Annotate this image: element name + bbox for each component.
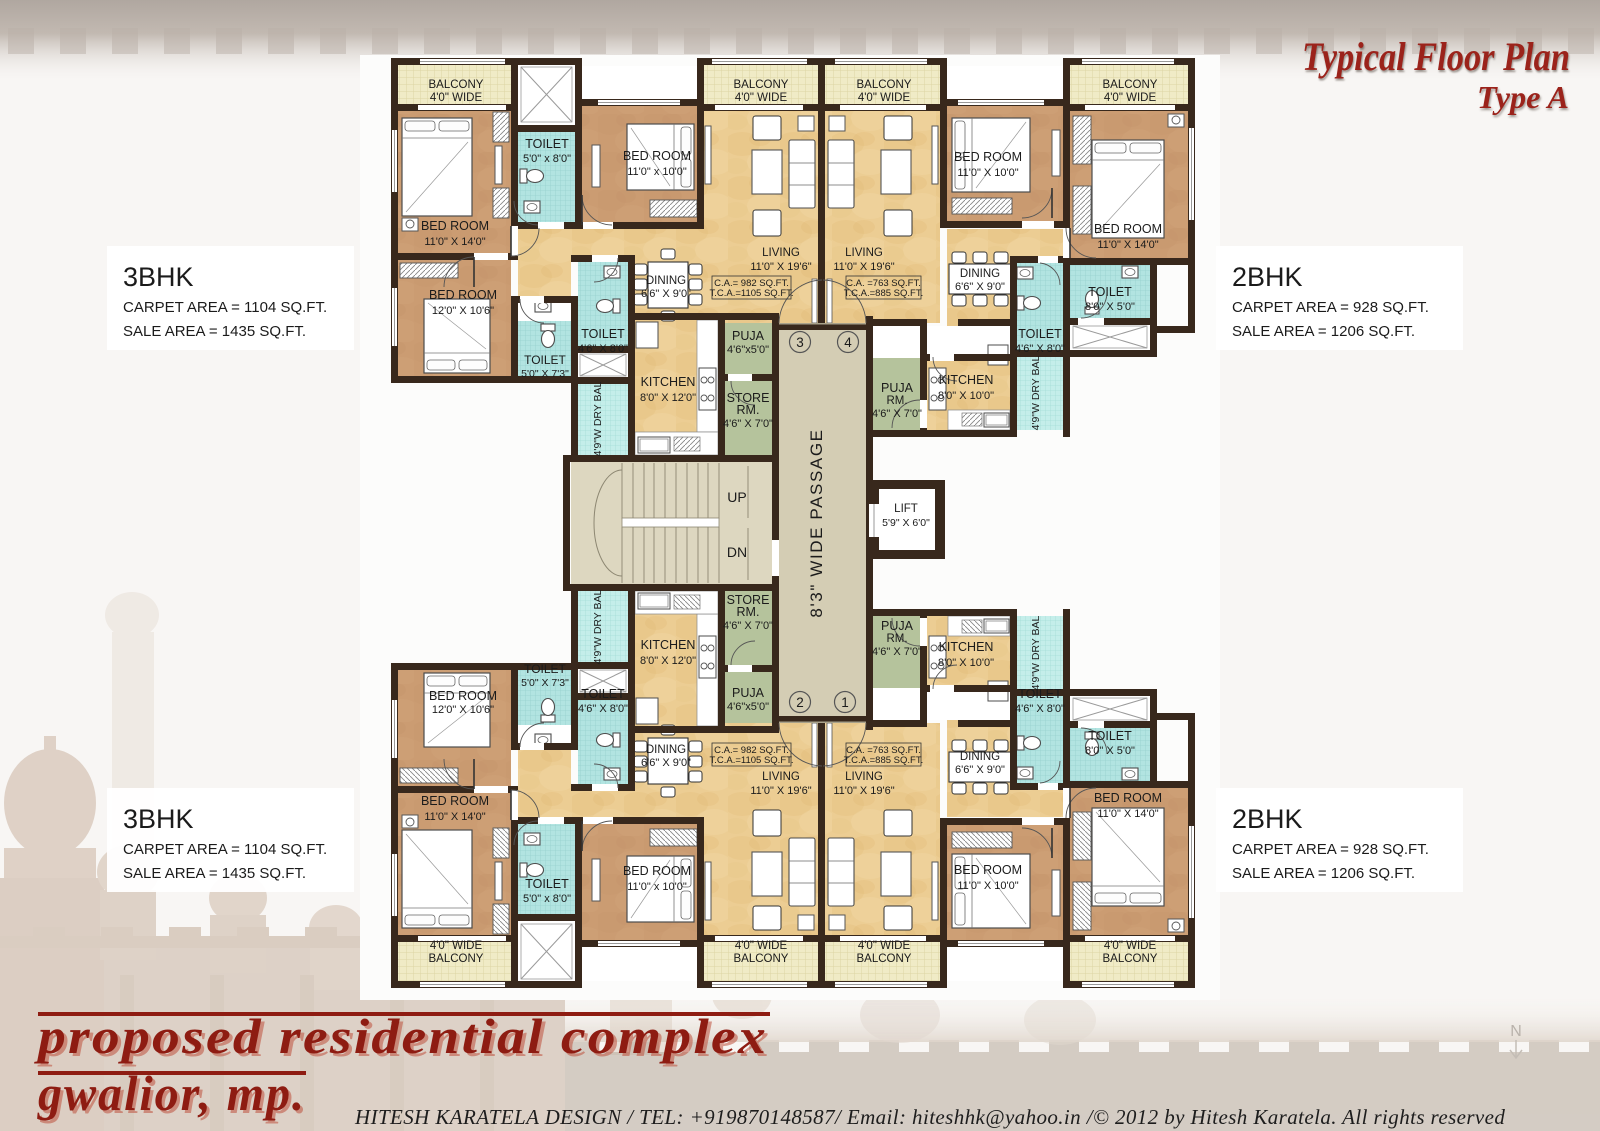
svg-text:Typical Floor Plan: Typical Floor Plan (1302, 34, 1570, 79)
svg-text:11'0" X 19'6": 11'0" X 19'6" (750, 785, 811, 797)
svg-text:4'9"W DRY BAL: 4'9"W DRY BAL (1030, 355, 1042, 430)
svg-text:BED ROOM: BED ROOM (421, 219, 489, 233)
svg-text:HITESH KARATELA DESIGN / TEL:: HITESH KARATELA DESIGN / TEL: +919870148… (354, 1105, 1505, 1129)
svg-text:4'0" WIDE: 4'0" WIDE (858, 92, 911, 104)
svg-text:11'0" X 19'6": 11'0" X 19'6" (833, 261, 894, 273)
svg-text:8'3" WIDE PASSAGE: 8'3" WIDE PASSAGE (807, 428, 826, 617)
svg-text:11'0" X 19'6": 11'0" X 19'6" (833, 785, 894, 797)
svg-text:11'0" X 10'0": 11'0" X 10'0" (957, 167, 1018, 179)
svg-text:4'6" X 8'0": 4'6" X 8'0" (578, 703, 628, 715)
svg-text:T.C.A.=885 SQ.FT.: T.C.A.=885 SQ.FT. (844, 755, 923, 766)
svg-text:5'0" X 7'3": 5'0" X 7'3" (521, 368, 569, 380)
svg-text:proposed residential complex: proposed residential complex (34, 1008, 768, 1064)
svg-text:4'6" X 8'0": 4'6" X 8'0" (578, 343, 628, 355)
svg-text:11'0" X 14'0": 11'0" X 14'0" (1097, 808, 1158, 820)
svg-text:11'0" x 10'0": 11'0" x 10'0" (627, 166, 687, 178)
svg-text:4'6" X 7'0": 4'6" X 7'0" (872, 646, 922, 658)
svg-text:11'0" X 14'0": 11'0" X 14'0" (424, 811, 485, 823)
svg-text:TOILET: TOILET (1018, 327, 1062, 341)
svg-text:TOILET: TOILET (524, 662, 566, 676)
svg-text:DINING: DINING (646, 275, 686, 287)
svg-text:BALCONY: BALCONY (734, 79, 789, 91)
svg-text:8'0" X 10'0": 8'0" X 10'0" (938, 390, 994, 402)
svg-text:BALCONY: BALCONY (429, 79, 484, 91)
svg-text:4'9"W DRY BAL: 4'9"W DRY BAL (592, 381, 604, 456)
svg-text:DINING: DINING (960, 268, 1000, 280)
svg-text:SALE AREA = 1206 SQ.FT.: SALE AREA = 1206 SQ.FT. (1232, 323, 1415, 340)
svg-text:11'0" X 19'6": 11'0" X 19'6" (750, 261, 811, 273)
svg-text:3BHK: 3BHK (123, 804, 194, 834)
svg-text:TOILET: TOILET (1088, 729, 1132, 743)
svg-text:LIVING: LIVING (845, 771, 883, 783)
svg-text:5'0" x 8'0": 5'0" x 8'0" (523, 153, 571, 165)
svg-text:T.C.A.=885 SQ.FT.: T.C.A.=885 SQ.FT. (844, 288, 923, 299)
svg-text:8'0" X 10'0": 8'0" X 10'0" (938, 657, 994, 669)
svg-text:5'0" X 7'3": 5'0" X 7'3" (521, 677, 569, 689)
svg-text:LIVING: LIVING (762, 247, 800, 259)
svg-text:4'6" X 7'0": 4'6" X 7'0" (723, 418, 773, 430)
svg-text:8'0" X 5'0": 8'0" X 5'0" (1085, 301, 1135, 313)
svg-text:CARPET AREA = 928 SQ.FT.: CARPET AREA = 928 SQ.FT. (1232, 299, 1429, 316)
svg-text:SALE AREA = 1206 SQ.FT.: SALE AREA = 1206 SQ.FT. (1232, 865, 1415, 882)
svg-text:T.C.A.=1105 SQ.FT.: T.C.A.=1105 SQ.FT. (709, 288, 793, 299)
svg-text:PUJA: PUJA (732, 329, 765, 343)
svg-text:KITCHEN: KITCHEN (939, 640, 994, 654)
svg-text:CARPET AREA = 1104 SQ.FT.: CARPET AREA = 1104 SQ.FT. (123, 841, 327, 858)
svg-text:BED ROOM: BED ROOM (623, 149, 691, 163)
svg-text:11'0" X 10'0": 11'0" X 10'0" (957, 880, 1018, 892)
svg-text:LIVING: LIVING (845, 247, 883, 259)
svg-text:1: 1 (841, 695, 849, 710)
svg-text:TOILET: TOILET (581, 327, 625, 341)
svg-text:TOILET: TOILET (525, 877, 569, 891)
svg-text:CARPET AREA = 1104 SQ.FT.: CARPET AREA = 1104 SQ.FT. (123, 299, 327, 316)
svg-text:4'6" X 8'0": 4'6" X 8'0" (1015, 343, 1065, 355)
svg-text:BED ROOM: BED ROOM (954, 150, 1022, 164)
svg-text:5'9" X 6'0": 5'9" X 6'0" (882, 517, 930, 529)
svg-text:2BHK: 2BHK (1232, 262, 1303, 292)
svg-text:SALE AREA = 1435 SQ.FT.: SALE AREA = 1435 SQ.FT. (123, 323, 306, 340)
svg-text:UP: UP (727, 489, 746, 505)
svg-text:12'0" X 10'6": 12'0" X 10'6" (432, 704, 494, 716)
svg-text:4'0" WIDE: 4'0" WIDE (858, 940, 911, 952)
svg-text:TOILET: TOILET (524, 353, 566, 367)
svg-text:BALCONY: BALCONY (857, 79, 912, 91)
svg-text:11'0" x 10'0": 11'0" x 10'0" (627, 881, 687, 893)
svg-text:4'9"W DRY BAL: 4'9"W DRY BAL (592, 589, 604, 664)
svg-text:TOILET: TOILET (1088, 285, 1132, 299)
svg-text:4'0" WIDE: 4'0" WIDE (1104, 92, 1157, 104)
svg-text:PUJA: PUJA (732, 686, 765, 700)
svg-text:BALCONY: BALCONY (734, 953, 789, 965)
svg-text:BED ROOM: BED ROOM (429, 288, 497, 302)
svg-text:12'0" X 10'6": 12'0" X 10'6" (432, 305, 494, 317)
svg-text:LIFT: LIFT (894, 503, 918, 515)
svg-text:PUJA: PUJA (881, 619, 914, 633)
svg-text:BED ROOM: BED ROOM (429, 689, 497, 703)
svg-text:2BHK: 2BHK (1232, 804, 1303, 834)
svg-text:SALE AREA = 1435 SQ.FT.: SALE AREA = 1435 SQ.FT. (123, 865, 306, 882)
svg-text:8'0" X 12'0": 8'0" X 12'0" (640, 655, 696, 667)
svg-text:4'0" WIDE: 4'0" WIDE (430, 940, 483, 952)
svg-text:TOILET: TOILET (525, 137, 569, 151)
svg-text:N: N (1510, 1023, 1522, 1040)
svg-text:4'6" X 7'0": 4'6" X 7'0" (872, 408, 922, 420)
svg-text:4'0" WIDE: 4'0" WIDE (735, 92, 788, 104)
svg-text:6'6" X 9'0": 6'6" X 9'0" (955, 764, 1005, 776)
svg-text:BED ROOM: BED ROOM (1094, 791, 1162, 805)
svg-text:DINING: DINING (646, 744, 686, 756)
svg-text:PUJA: PUJA (881, 381, 914, 395)
svg-text:4'0" WIDE: 4'0" WIDE (735, 940, 788, 952)
svg-text:T.C.A.=1105 SQ.FT.: T.C.A.=1105 SQ.FT. (709, 755, 793, 766)
svg-text:DN: DN (727, 544, 747, 560)
svg-text:RM.: RM. (737, 403, 760, 417)
svg-text:BALCONY: BALCONY (1103, 79, 1158, 91)
svg-text:BED ROOM: BED ROOM (421, 794, 489, 808)
svg-text:4'0" WIDE: 4'0" WIDE (1104, 940, 1157, 952)
svg-text:4'0" WIDE: 4'0" WIDE (430, 92, 483, 104)
svg-text:KITCHEN: KITCHEN (641, 375, 696, 389)
svg-text:BED ROOM: BED ROOM (954, 863, 1022, 877)
svg-text:4'6" X 7'0": 4'6" X 7'0" (723, 620, 773, 632)
svg-text:11'0" X 14'0": 11'0" X 14'0" (1097, 239, 1158, 251)
svg-text:LIVING: LIVING (762, 771, 800, 783)
svg-text:5'0" x 8'0": 5'0" x 8'0" (523, 893, 571, 905)
svg-text:BALCONY: BALCONY (1103, 953, 1158, 965)
svg-text:6'6" X 9'0": 6'6" X 9'0" (955, 281, 1005, 293)
svg-text:BED ROOM: BED ROOM (623, 864, 691, 878)
svg-text:RM.: RM. (886, 633, 907, 645)
svg-text:CARPET AREA = 928 SQ.FT.: CARPET AREA = 928 SQ.FT. (1232, 841, 1429, 858)
svg-text:4'9"W DRY BAL: 4'9"W DRY BAL (1030, 615, 1042, 690)
svg-text:6'6" X 9'0": 6'6" X 9'0" (641, 288, 691, 300)
svg-text:3: 3 (796, 335, 804, 350)
svg-text:4'6"x5'0": 4'6"x5'0" (727, 344, 769, 356)
svg-text:4'6"x5'0": 4'6"x5'0" (727, 701, 769, 713)
svg-text:Type A: Type A (1477, 79, 1569, 115)
svg-text:4'6" X 8'0": 4'6" X 8'0" (1015, 703, 1065, 715)
svg-text:8'0" X 5'0": 8'0" X 5'0" (1085, 745, 1135, 757)
svg-text:11'0" X 14'0": 11'0" X 14'0" (424, 236, 485, 248)
svg-text:TOILET: TOILET (581, 687, 625, 701)
svg-text:KITCHEN: KITCHEN (939, 373, 994, 387)
svg-text:BED ROOM: BED ROOM (1094, 222, 1162, 236)
svg-text:3BHK: 3BHK (123, 262, 194, 292)
svg-text:2: 2 (796, 695, 804, 710)
svg-text:DINING: DINING (960, 751, 1000, 763)
svg-text:BALCONY: BALCONY (429, 953, 484, 965)
svg-text:4: 4 (844, 335, 852, 350)
svg-text:RM.: RM. (886, 395, 907, 407)
svg-text:KITCHEN: KITCHEN (641, 638, 696, 652)
svg-text:8'0" X 12'0": 8'0" X 12'0" (640, 392, 696, 404)
svg-text:BALCONY: BALCONY (857, 953, 912, 965)
svg-text:RM.: RM. (737, 605, 760, 619)
svg-text:6'6" X 9'0": 6'6" X 9'0" (641, 757, 691, 769)
